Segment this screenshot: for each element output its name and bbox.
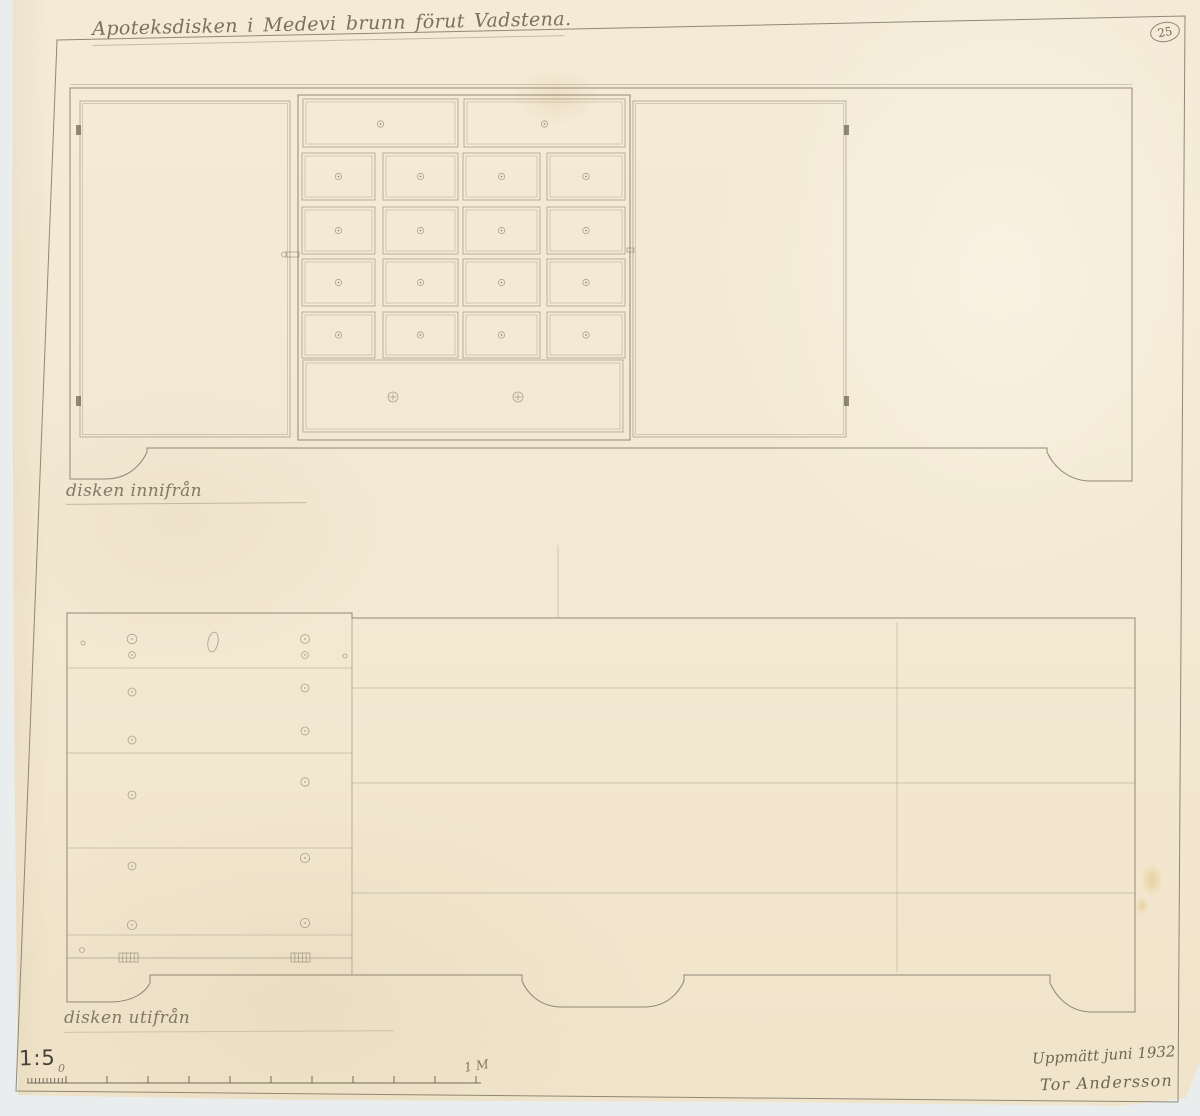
drawer-knob-dot xyxy=(501,282,503,284)
flap-hinge xyxy=(291,953,310,962)
drawer-knob-dot xyxy=(420,176,422,178)
keyhole-escutcheon xyxy=(206,631,219,652)
door-panel xyxy=(633,101,846,437)
ruler-zero-label: 0 xyxy=(58,1062,65,1075)
hinge xyxy=(76,125,81,135)
drawer-knob-dot xyxy=(380,123,382,125)
nail-head-dot xyxy=(131,654,132,655)
scale-ruler xyxy=(27,1076,481,1083)
label-disken-utifran: disken utifrån xyxy=(64,1008,190,1028)
nail-head-dot xyxy=(131,865,132,866)
wide-drawer xyxy=(303,99,458,147)
hinge xyxy=(844,125,849,135)
nail-head-dot xyxy=(131,691,132,692)
drawing-linework xyxy=(0,0,1200,1116)
nail-head xyxy=(81,641,85,645)
counter-inside-drawing xyxy=(70,85,1132,482)
flap-hinge xyxy=(119,953,138,962)
door-latch xyxy=(286,252,299,257)
drawer-knob-dot xyxy=(585,334,587,336)
drawer-knob-dot xyxy=(501,230,503,232)
door-panel-inner xyxy=(636,104,844,435)
sheet-border xyxy=(16,16,1185,1102)
door-panel xyxy=(80,101,290,437)
drawer-knob-dot xyxy=(585,282,587,284)
nail-head-dot xyxy=(131,924,132,925)
drawer-knob-dot xyxy=(420,282,422,284)
drawer-knob-dot xyxy=(501,176,503,178)
scale-ratio-label: 1:5 xyxy=(19,1046,56,1071)
nail-head-dot xyxy=(304,654,305,655)
drawer-knob-dot xyxy=(338,176,340,178)
hinge xyxy=(76,396,81,406)
door-panel-inner xyxy=(83,104,288,435)
nail-head xyxy=(80,948,85,953)
drawer-knob-dot xyxy=(585,230,587,232)
wide-drawer-inner xyxy=(306,102,455,144)
label-disken-innifran: disken innifrån xyxy=(66,481,202,501)
nail-head-dot xyxy=(304,730,305,731)
drawer-knob-dot xyxy=(544,123,546,125)
drawer-knob-dot xyxy=(585,176,587,178)
nail-head-dot xyxy=(304,781,305,782)
drawer-knob-dot xyxy=(420,230,422,232)
nail-head-dot xyxy=(131,739,132,740)
counter-outline xyxy=(67,613,1135,1012)
counter-outside-drawing xyxy=(67,613,1135,1012)
nail-head-dot xyxy=(304,687,305,688)
bottom-wide-drawer xyxy=(303,360,623,432)
hinge xyxy=(844,396,849,406)
drawer-knob-dot xyxy=(501,334,503,336)
nail-head-dot xyxy=(304,638,305,639)
wide-drawer-inner xyxy=(467,102,622,144)
bottom-wide-drawer-inner xyxy=(306,363,620,429)
drawer-knob-dot xyxy=(338,230,340,232)
drawer-knob-dot xyxy=(338,282,340,284)
drawer-knob-dot xyxy=(420,334,422,336)
wide-drawer xyxy=(464,99,625,147)
scanned-drawing-page: { "sheet": { "title": "Apoteksdisken i M… xyxy=(0,0,1200,1116)
nail-head-dot xyxy=(304,857,305,858)
nail-head xyxy=(343,654,347,658)
sheet-border-line xyxy=(16,16,1185,1102)
nail-head-dot xyxy=(131,794,132,795)
drawer-knob-dot xyxy=(338,334,340,336)
nail-head-dot xyxy=(131,638,132,639)
nail-head-dot xyxy=(304,922,305,923)
